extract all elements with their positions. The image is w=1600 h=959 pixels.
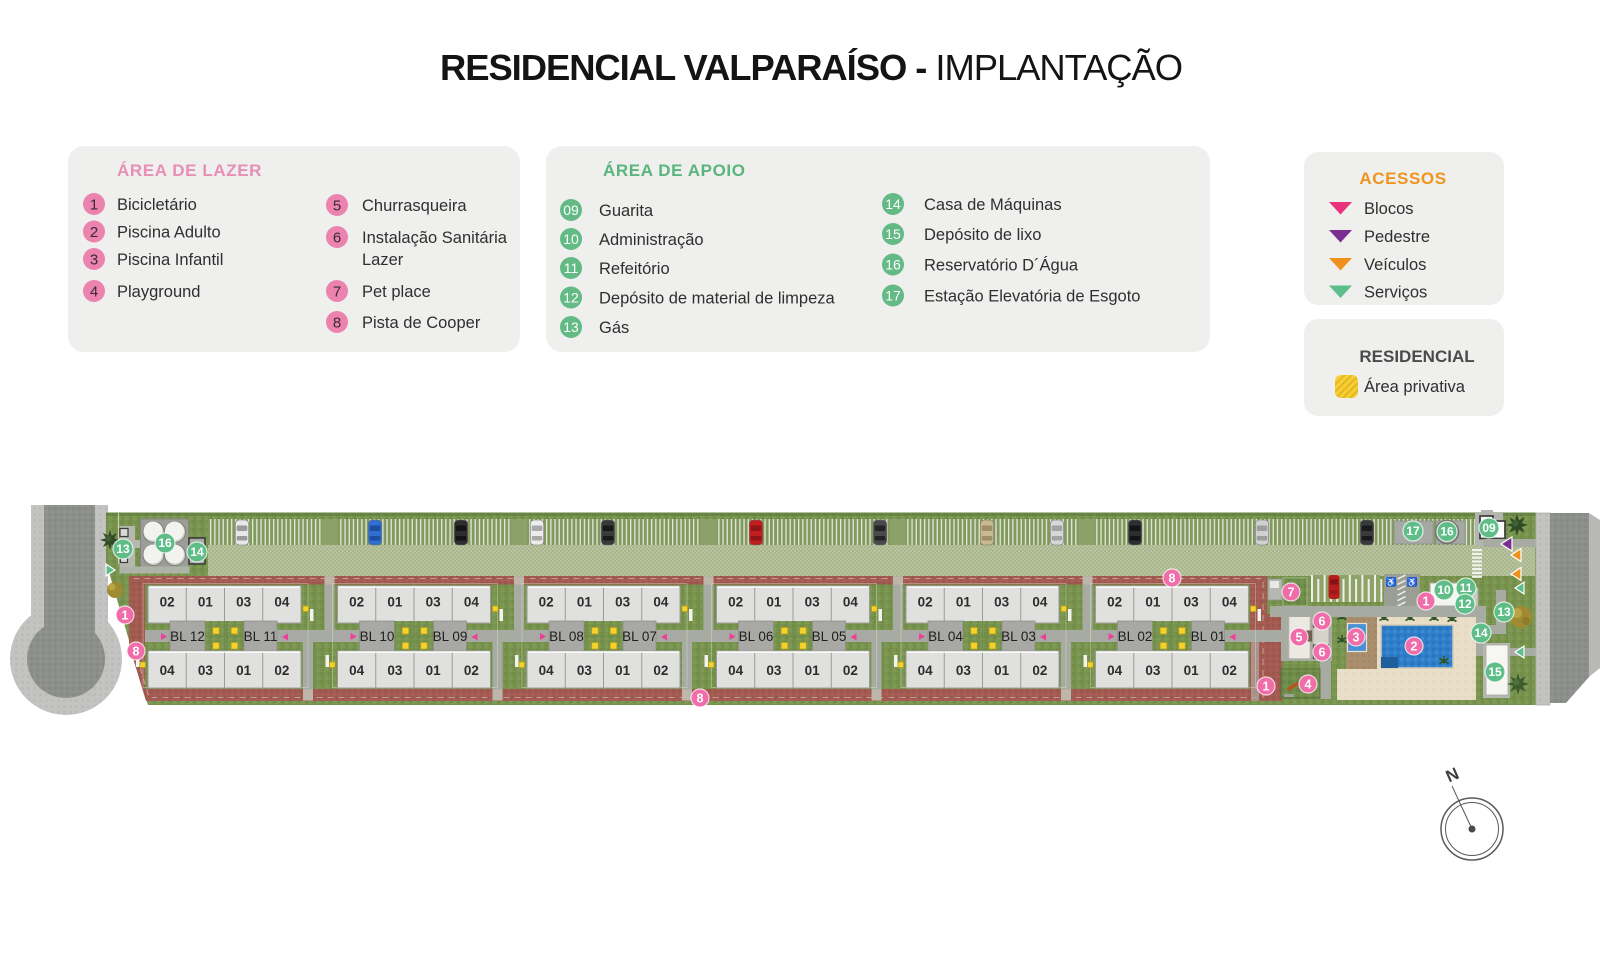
svg-text:RESIDENCIAL: RESIDENCIAL bbox=[1359, 347, 1474, 366]
svg-text:02: 02 bbox=[349, 595, 364, 610]
svg-text:1: 1 bbox=[1263, 680, 1270, 694]
svg-text:03: 03 bbox=[615, 595, 631, 610]
svg-text:03: 03 bbox=[1145, 663, 1161, 678]
svg-text:04: 04 bbox=[464, 595, 480, 610]
svg-text:03: 03 bbox=[577, 663, 593, 678]
svg-text:Playground: Playground bbox=[117, 283, 200, 301]
svg-text:12: 12 bbox=[1458, 597, 1472, 611]
svg-text:02: 02 bbox=[160, 595, 175, 610]
svg-text:BL 05: BL 05 bbox=[812, 629, 847, 644]
svg-text:04: 04 bbox=[274, 595, 290, 610]
svg-text:12: 12 bbox=[563, 289, 579, 305]
svg-text:Estação Elevatória de Esgoto: Estação Elevatória de Esgoto bbox=[924, 288, 1140, 306]
svg-text:6: 6 bbox=[1319, 615, 1326, 629]
svg-text:15: 15 bbox=[1488, 665, 1502, 679]
svg-text:01: 01 bbox=[766, 595, 782, 610]
svg-text:3: 3 bbox=[1353, 631, 1360, 645]
svg-text:3: 3 bbox=[90, 251, 98, 268]
svg-text:01: 01 bbox=[236, 663, 252, 678]
svg-text:4: 4 bbox=[90, 283, 98, 300]
svg-text:10: 10 bbox=[1437, 583, 1451, 597]
svg-text:16: 16 bbox=[1440, 525, 1454, 539]
svg-text:7: 7 bbox=[333, 283, 341, 300]
svg-text:2: 2 bbox=[90, 224, 98, 241]
svg-text:Refeitório: Refeitório bbox=[599, 260, 670, 278]
svg-text:02: 02 bbox=[539, 595, 554, 610]
svg-text:16: 16 bbox=[158, 536, 172, 550]
svg-text:03: 03 bbox=[1184, 595, 1200, 610]
svg-text:1: 1 bbox=[1423, 595, 1430, 609]
svg-text:03: 03 bbox=[426, 595, 442, 610]
svg-text:04: 04 bbox=[728, 663, 744, 678]
svg-text:02: 02 bbox=[1222, 663, 1237, 678]
svg-text:04: 04 bbox=[539, 663, 555, 678]
svg-text:5: 5 bbox=[333, 197, 341, 214]
svg-text:8: 8 bbox=[333, 314, 341, 331]
svg-text:BL 04: BL 04 bbox=[928, 629, 963, 644]
svg-text:8: 8 bbox=[697, 692, 704, 706]
svg-text:02: 02 bbox=[464, 663, 479, 678]
svg-text:03: 03 bbox=[994, 595, 1010, 610]
svg-text:Pet place: Pet place bbox=[362, 283, 431, 301]
svg-text:16: 16 bbox=[885, 256, 901, 272]
svg-text:BL 12: BL 12 bbox=[170, 629, 205, 644]
svg-text:BL 06: BL 06 bbox=[739, 629, 774, 644]
svg-text:BL 08: BL 08 bbox=[549, 629, 584, 644]
svg-text:04: 04 bbox=[918, 663, 934, 678]
svg-text:BL 07: BL 07 bbox=[622, 629, 657, 644]
svg-text:8: 8 bbox=[133, 645, 140, 659]
svg-text:1: 1 bbox=[122, 609, 129, 623]
svg-text:6: 6 bbox=[1319, 646, 1326, 660]
svg-text:13: 13 bbox=[1497, 605, 1511, 619]
svg-text:09: 09 bbox=[563, 202, 579, 218]
svg-text:01: 01 bbox=[426, 663, 442, 678]
svg-text:♿: ♿ bbox=[1407, 577, 1418, 587]
svg-text:14: 14 bbox=[1474, 626, 1488, 640]
svg-text:BL 11: BL 11 bbox=[244, 629, 278, 644]
svg-text:Veículos: Veículos bbox=[1364, 256, 1426, 274]
svg-text:04: 04 bbox=[653, 595, 669, 610]
svg-text:Pista de Cooper: Pista de Cooper bbox=[362, 314, 481, 332]
svg-text:4: 4 bbox=[1305, 678, 1312, 692]
svg-text:02: 02 bbox=[1107, 595, 1122, 610]
svg-text:BL 10: BL 10 bbox=[360, 629, 395, 644]
svg-text:8: 8 bbox=[1169, 572, 1176, 586]
svg-text:Pedestre: Pedestre bbox=[1364, 228, 1430, 246]
svg-text:Bicicletário: Bicicletário bbox=[117, 196, 197, 214]
svg-text:03: 03 bbox=[236, 595, 252, 610]
svg-text:Administração: Administração bbox=[599, 231, 704, 249]
svg-text:Casa de Máquinas: Casa de Máquinas bbox=[924, 196, 1062, 214]
svg-text:Piscina Adulto: Piscina Adulto bbox=[117, 224, 221, 242]
svg-text:02: 02 bbox=[274, 663, 289, 678]
svg-text:03: 03 bbox=[198, 663, 214, 678]
svg-text:15: 15 bbox=[885, 226, 901, 242]
svg-text:02: 02 bbox=[843, 663, 858, 678]
svg-text:Reservatório D´Água: Reservatório D´Água bbox=[924, 256, 1079, 275]
svg-text:BL 03: BL 03 bbox=[1001, 629, 1036, 644]
svg-text:09: 09 bbox=[1482, 521, 1496, 535]
svg-text:01: 01 bbox=[994, 663, 1010, 678]
svg-text:04: 04 bbox=[1032, 595, 1048, 610]
svg-text:17: 17 bbox=[885, 287, 901, 303]
svg-text:01: 01 bbox=[805, 663, 821, 678]
svg-text:RESIDENCIAL VALPARAÍSO - IMPLA: RESIDENCIAL VALPARAÍSO - IMPLANTAÇÃO bbox=[440, 47, 1182, 88]
svg-text:Depósito de material de limpez: Depósito de material de limpeza bbox=[599, 290, 836, 308]
svg-text:10: 10 bbox=[563, 231, 579, 247]
svg-text:6: 6 bbox=[333, 229, 341, 246]
svg-text:01: 01 bbox=[577, 595, 593, 610]
svg-text:5: 5 bbox=[1296, 631, 1303, 645]
svg-text:Lazer: Lazer bbox=[362, 251, 404, 269]
svg-text:Depósito de lixo: Depósito de lixo bbox=[924, 226, 1041, 244]
svg-text:Área privativa: Área privativa bbox=[1364, 377, 1466, 396]
svg-text:Blocos: Blocos bbox=[1364, 200, 1414, 218]
svg-text:7: 7 bbox=[1288, 586, 1295, 600]
svg-text:Churrasqueira: Churrasqueira bbox=[362, 197, 467, 215]
svg-text:BL 01: BL 01 bbox=[1191, 629, 1226, 644]
svg-text:11: 11 bbox=[564, 260, 579, 276]
svg-text:Serviços: Serviços bbox=[1364, 284, 1427, 302]
svg-text:01: 01 bbox=[1145, 595, 1161, 610]
svg-text:BL 02: BL 02 bbox=[1118, 629, 1153, 644]
svg-text:03: 03 bbox=[956, 663, 972, 678]
svg-text:ACESSOS: ACESSOS bbox=[1359, 169, 1446, 188]
svg-text:04: 04 bbox=[160, 663, 176, 678]
svg-text:13: 13 bbox=[116, 542, 130, 556]
svg-text:♿: ♿ bbox=[1386, 577, 1397, 587]
svg-text:17: 17 bbox=[1406, 524, 1420, 538]
svg-text:ÁREA DE APOIO: ÁREA DE APOIO bbox=[603, 161, 746, 180]
svg-text:02: 02 bbox=[1032, 663, 1047, 678]
svg-text:01: 01 bbox=[387, 595, 403, 610]
svg-text:04: 04 bbox=[349, 663, 365, 678]
svg-text:11: 11 bbox=[1460, 581, 1473, 595]
svg-text:Piscina Infantil: Piscina Infantil bbox=[117, 251, 223, 269]
svg-text:02: 02 bbox=[918, 595, 933, 610]
svg-text:03: 03 bbox=[387, 663, 403, 678]
svg-text:04: 04 bbox=[1222, 595, 1238, 610]
svg-text:03: 03 bbox=[805, 595, 821, 610]
svg-text:ÁREA DE LAZER: ÁREA DE LAZER bbox=[117, 161, 262, 180]
svg-text:01: 01 bbox=[615, 663, 631, 678]
svg-text:Guarita: Guarita bbox=[599, 202, 654, 220]
svg-text:1: 1 bbox=[90, 196, 98, 213]
svg-text:02: 02 bbox=[653, 663, 668, 678]
svg-text:03: 03 bbox=[766, 663, 782, 678]
svg-text:Gás: Gás bbox=[599, 319, 629, 337]
svg-text:14: 14 bbox=[885, 196, 901, 212]
svg-text:04: 04 bbox=[1107, 663, 1123, 678]
svg-text:14: 14 bbox=[190, 545, 204, 559]
svg-text:BL 09: BL 09 bbox=[433, 629, 468, 644]
svg-text:13: 13 bbox=[563, 319, 579, 335]
svg-text:2: 2 bbox=[1411, 640, 1418, 654]
svg-text:01: 01 bbox=[1184, 663, 1200, 678]
svg-text:04: 04 bbox=[843, 595, 859, 610]
svg-text:N: N bbox=[1443, 764, 1462, 786]
svg-text:01: 01 bbox=[198, 595, 214, 610]
svg-text:01: 01 bbox=[956, 595, 972, 610]
svg-text:02: 02 bbox=[728, 595, 743, 610]
svg-text:Instalação Sanitária: Instalação Sanitária bbox=[362, 229, 508, 247]
